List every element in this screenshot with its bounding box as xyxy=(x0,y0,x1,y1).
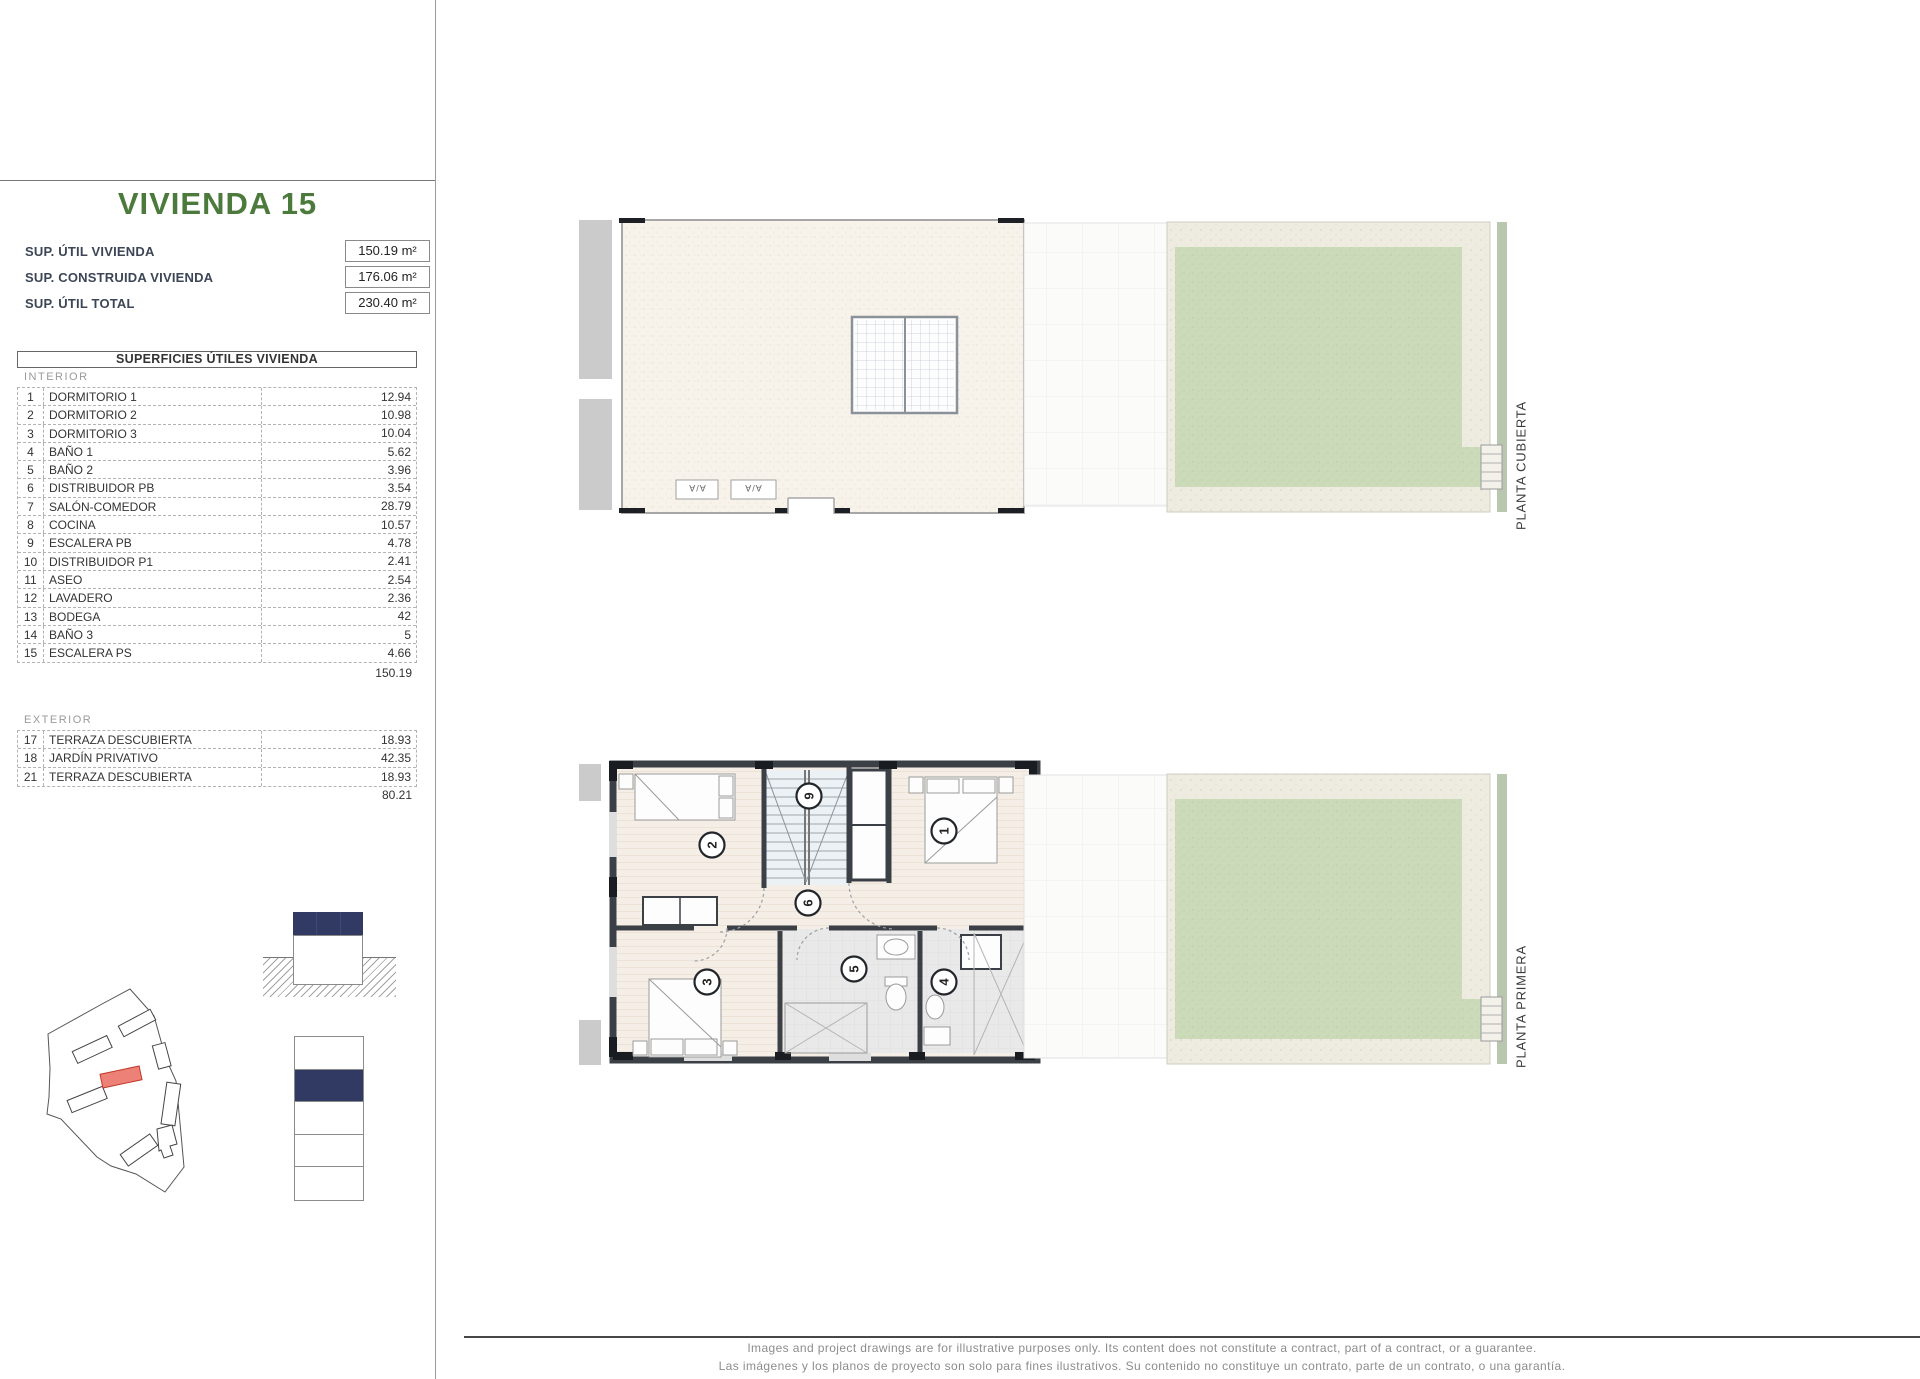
roof-plan-label: PLANTA CUBIERTA xyxy=(1510,408,1532,522)
svg-text:9: 9 xyxy=(802,792,817,799)
roof-notch xyxy=(788,498,834,514)
garden xyxy=(1167,222,1507,512)
row-value: 4.66 xyxy=(262,646,416,660)
summary-row: SUP. CONSTRUIDA VIVIENDA 176.06 m² xyxy=(25,266,430,288)
row-name: SALÓN-COMEDOR xyxy=(44,498,262,515)
table-row: 14BAÑO 35 xyxy=(18,626,416,644)
svg-text:6: 6 xyxy=(801,899,816,906)
terrace-tiles xyxy=(1024,775,1167,1058)
row-value: 10.57 xyxy=(262,518,416,532)
table-row: 21TERRAZA DESCUBIERTA18.93 xyxy=(18,768,416,786)
row-num: 14 xyxy=(18,626,44,643)
table-row: 12LAVADERO2.36 xyxy=(18,589,416,607)
row-name: COCINA xyxy=(44,516,262,533)
section-upper-floors xyxy=(293,912,363,935)
skylight xyxy=(852,317,957,413)
svg-text:5: 5 xyxy=(847,965,862,972)
interior-table: 1DORMITORIO 112.94 2DORMITORIO 210.98 3D… xyxy=(17,387,417,663)
summary-row: SUP. ÚTIL TOTAL 230.40 m² xyxy=(25,292,430,314)
row-num: 21 xyxy=(18,768,44,786)
surfaces-table-header: SUPERFICIES ÚTILES VIVIENDA xyxy=(17,351,417,368)
row-name: DORMITORIO 2 xyxy=(44,406,262,423)
row-name: DORMITORIO 3 xyxy=(44,425,262,442)
table-row: 8COCINA10.57 xyxy=(18,516,416,534)
sidebar-divider-line xyxy=(435,0,436,1379)
site-plan xyxy=(37,987,199,1195)
exterior-table: 17TERRAZA DESCUBIERTA18.93 18JARDÍN PRIV… xyxy=(17,730,417,787)
row-value: 18.93 xyxy=(262,770,416,784)
row-value: 12.94 xyxy=(262,390,416,404)
first-floor-plan: 1 2 3 4 5 6 9 xyxy=(579,737,1535,1067)
row-name: ESCALERA PS xyxy=(44,644,262,662)
neighbor-strip xyxy=(579,220,612,510)
row-value: 28.79 xyxy=(262,499,416,513)
row-num: 11 xyxy=(18,571,44,588)
row-value: 5.62 xyxy=(262,445,416,459)
summary-label: SUP. ÚTIL TOTAL xyxy=(25,296,135,311)
row-name: DISTRIBUIDOR P1 xyxy=(44,553,262,570)
ac-unit-label: A/A xyxy=(744,483,762,493)
row-name: ESCALERA PB xyxy=(44,534,262,551)
svg-text:3: 3 xyxy=(700,978,715,985)
floor-cell xyxy=(295,1102,363,1135)
table-row: 11ASEO2.54 xyxy=(18,571,416,589)
row-name: DISTRIBUIDOR PB xyxy=(44,479,262,496)
table-row: 1DORMITORIO 112.94 xyxy=(18,388,416,406)
roof-area xyxy=(622,220,1024,513)
row-value: 2.41 xyxy=(262,554,416,568)
garden-lawn xyxy=(1175,247,1483,487)
room-circle-9: 9 xyxy=(797,784,822,809)
svg-text:2: 2 xyxy=(705,841,720,848)
table-row: 9ESCALERA PB4.78 xyxy=(18,534,416,552)
row-value: 42.35 xyxy=(262,751,416,765)
row-value: 3.96 xyxy=(262,463,416,477)
row-name: ASEO xyxy=(44,571,262,588)
bed-room3 xyxy=(633,979,737,1057)
roof-plan: A/A A/A xyxy=(579,217,1535,528)
row-name: BAÑO 3 xyxy=(44,626,262,643)
floor-cell xyxy=(295,1167,363,1200)
row-name: TERRAZA DESCUBIERTA xyxy=(44,768,262,786)
table-row: 5BAÑO 23.96 xyxy=(18,461,416,479)
row-name: BODEGA xyxy=(44,608,262,625)
row-value: 18.93 xyxy=(262,733,416,747)
table-row: 3DORMITORIO 310.04 xyxy=(18,425,416,443)
row-name: JARDÍN PRIVATIVO xyxy=(44,749,262,766)
garden-steps xyxy=(1481,445,1502,489)
row-value: 10.98 xyxy=(262,408,416,422)
garden xyxy=(1167,774,1507,1064)
ac-unit: A/A xyxy=(676,480,718,499)
room-circle-4: 4 xyxy=(932,970,957,995)
table-row: 2DORMITORIO 210.98 xyxy=(18,406,416,424)
row-name: BAÑO 1 xyxy=(44,443,262,460)
table-row: 7SALÓN-COMEDOR28.79 xyxy=(18,498,416,516)
disclaimer-en: Images and project drawings are for illu… xyxy=(464,1341,1820,1355)
summary-row: SUP. ÚTIL VIVIENDA 150.19 m² xyxy=(25,240,430,262)
row-num: 7 xyxy=(18,498,44,515)
interior-total: 150.19 xyxy=(17,666,417,680)
wardrobe xyxy=(851,770,887,880)
summary-value: 230.40 m² xyxy=(345,292,430,314)
row-num: 10 xyxy=(18,553,44,570)
footer-separator xyxy=(464,1336,1920,1338)
table-row: 4BAÑO 15.62 xyxy=(18,443,416,461)
room-circle-2: 2 xyxy=(700,833,725,858)
row-num: 4 xyxy=(18,443,44,460)
site-boundary xyxy=(47,989,184,1192)
row-value: 5 xyxy=(262,628,416,642)
terrace-tiles xyxy=(1024,223,1167,506)
first-floor-plan-label: PLANTA PRIMERA xyxy=(1510,950,1532,1064)
garden-lawn xyxy=(1175,799,1483,1039)
ac-unit: A/A xyxy=(731,480,776,499)
row-name: LAVADERO xyxy=(44,589,262,606)
bed-room2 xyxy=(619,774,735,820)
neighbor-strip xyxy=(579,1020,601,1065)
row-num: 12 xyxy=(18,589,44,606)
table-row: 10DISTRIBUIDOR P12.41 xyxy=(18,553,416,571)
row-num: 9 xyxy=(18,534,44,551)
room-circle-3: 3 xyxy=(695,970,720,995)
row-name: DORMITORIO 1 xyxy=(44,388,262,405)
section-basement xyxy=(293,935,363,985)
floor-cell-current xyxy=(295,1070,363,1103)
row-value: 2.54 xyxy=(262,573,416,587)
row-value: 4.78 xyxy=(262,536,416,550)
row-num: 13 xyxy=(18,608,44,625)
neighbor-strip xyxy=(579,764,601,801)
interior-section-label: INTERIOR xyxy=(24,371,89,383)
summary-label: SUP. ÚTIL VIVIENDA xyxy=(25,244,155,259)
row-num: 17 xyxy=(18,731,44,748)
summary-label: SUP. CONSTRUIDA VIVIENDA xyxy=(25,270,213,285)
table-row: 13BODEGA42 xyxy=(18,608,416,626)
row-name: BAÑO 2 xyxy=(44,461,262,478)
exterior-section-label: EXTERIOR xyxy=(24,714,92,726)
row-num: 18 xyxy=(18,749,44,766)
room-circle-1: 1 xyxy=(932,819,957,844)
disclaimer-es: Las imágenes y los planos de proyecto so… xyxy=(464,1359,1820,1373)
summary-value: 150.19 m² xyxy=(345,240,430,262)
table-row: 18JARDÍN PRIVATIVO42.35 xyxy=(18,749,416,767)
bed-room1 xyxy=(909,777,1013,863)
floor-cell xyxy=(295,1135,363,1168)
row-value: 3.54 xyxy=(262,481,416,495)
row-num: 3 xyxy=(18,425,44,442)
summary-value: 176.06 m² xyxy=(345,266,430,288)
svg-text:4: 4 xyxy=(937,978,952,986)
garden-steps xyxy=(1481,997,1502,1041)
exterior-total: 80.21 xyxy=(17,788,417,802)
row-num: 1 xyxy=(18,388,44,405)
room-circle-6: 6 xyxy=(796,891,821,916)
row-num: 15 xyxy=(18,644,44,662)
row-num: 6 xyxy=(18,479,44,496)
row-name: TERRAZA DESCUBIERTA xyxy=(44,731,262,748)
row-value: 10.04 xyxy=(262,426,416,440)
row-num: 8 xyxy=(18,516,44,533)
floor-level-indicator xyxy=(294,1036,364,1201)
sidebar: VIVIENDA 15 SUP. ÚTIL VIVIENDA 150.19 m²… xyxy=(0,0,435,1379)
room-circle-5: 5 xyxy=(842,957,867,982)
hall-wardrobe xyxy=(643,897,717,925)
ac-unit-label: A/A xyxy=(688,483,706,493)
row-value: 2.36 xyxy=(262,591,416,605)
row-value: 42 xyxy=(262,609,416,623)
row-num: 5 xyxy=(18,461,44,478)
floor-cell xyxy=(295,1037,363,1070)
table-row: 17TERRAZA DESCUBIERTA18.93 xyxy=(18,731,416,749)
row-num: 2 xyxy=(18,406,44,423)
table-row: 15ESCALERA PS4.66 xyxy=(18,644,416,662)
page-title: VIVIENDA 15 xyxy=(0,186,435,222)
svg-text:1: 1 xyxy=(937,827,952,834)
plan-sheet: VIVIENDA 15 SUP. ÚTIL VIVIENDA 150.19 m²… xyxy=(0,0,1920,1379)
table-row: 6DISTRIBUIDOR PB3.54 xyxy=(18,479,416,497)
